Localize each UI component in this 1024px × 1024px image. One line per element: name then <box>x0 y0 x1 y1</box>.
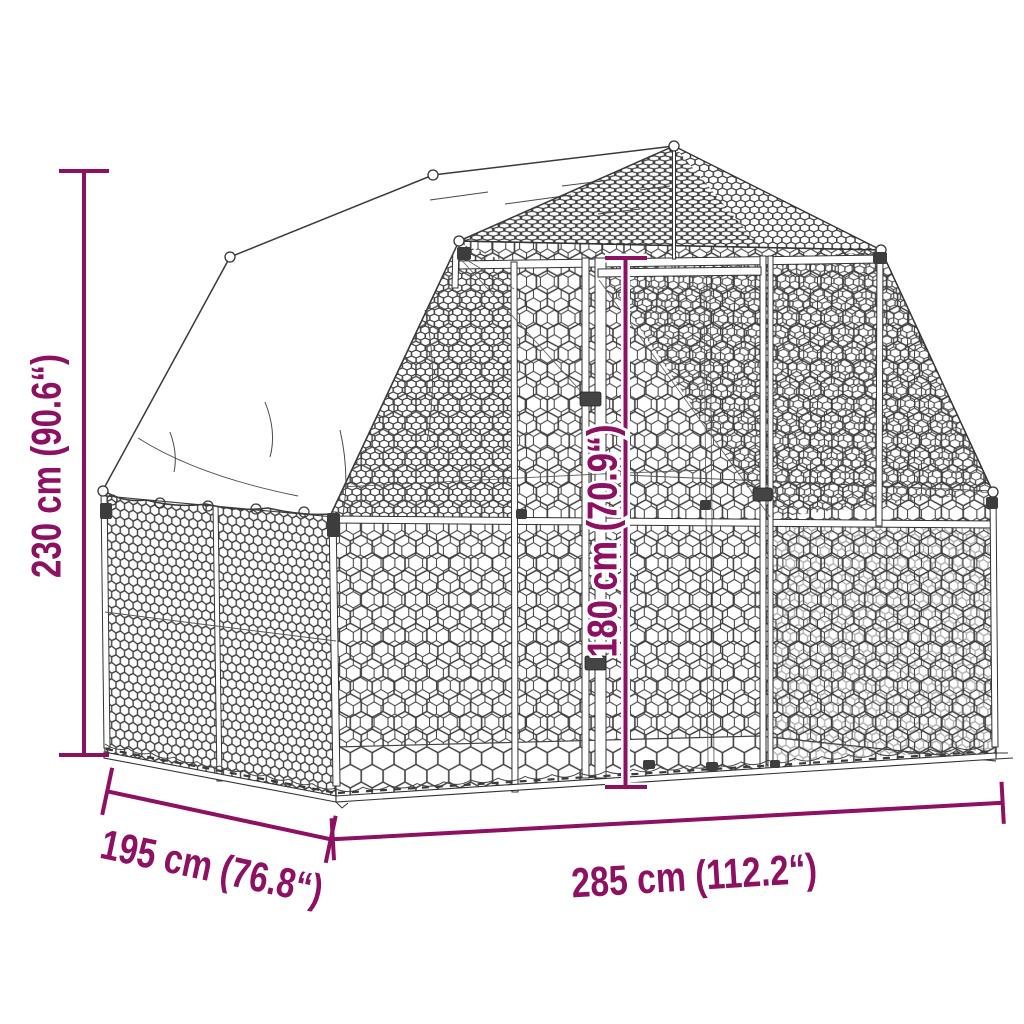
svg-text:285 cm (112.2“): 285 cm (112.2“) <box>570 845 818 907</box>
svg-text:195 cm (76.8“): 195 cm (76.8“) <box>97 820 328 913</box>
svg-text:180 cm (70.9“): 180 cm (70.9“) <box>579 425 626 658</box>
svg-text:230 cm (90.6“): 230 cm (90.6“) <box>23 354 70 578</box>
